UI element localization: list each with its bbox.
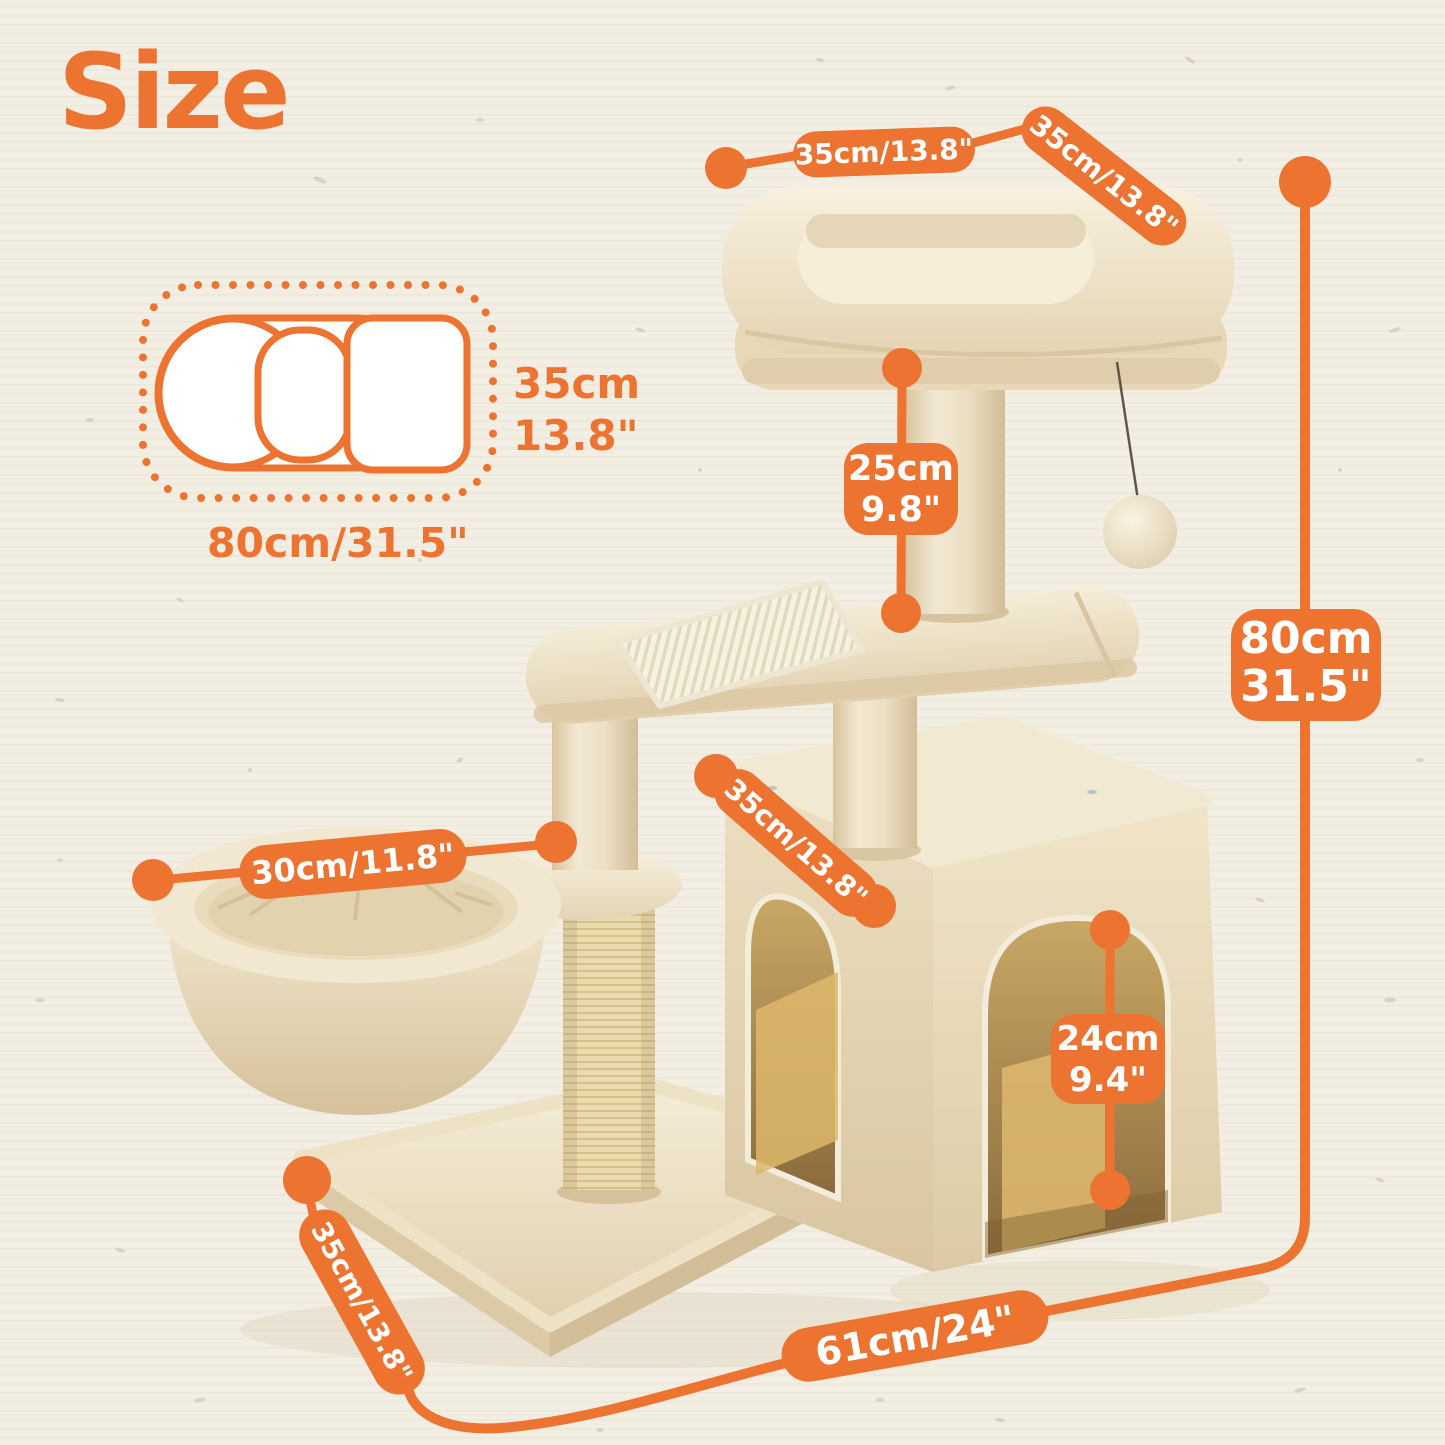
total-height-inch: 31.5" xyxy=(1240,661,1371,712)
footprint-rect-shape xyxy=(347,318,467,470)
perch-width-label: 35cm/13.8" xyxy=(794,132,974,171)
dim-endpoint-dot xyxy=(535,821,577,863)
size-infographic: Size 35cm 13.8" 80cm/31.5" xyxy=(0,0,1445,1445)
door-height-inch: 9.4" xyxy=(1069,1060,1147,1100)
condo-house xyxy=(725,722,1222,1272)
sisal-scratching-post xyxy=(557,890,661,1204)
pom-pom-ball xyxy=(1103,495,1177,569)
dim-endpoint-dot xyxy=(1279,156,1331,208)
dim-endpoint-dot xyxy=(132,859,174,901)
dim-endpoint-dot xyxy=(881,593,921,633)
footprint-depth-cm: 35cm xyxy=(513,359,640,408)
dim-endpoint-dot xyxy=(1090,910,1130,950)
footprint-rounded-square-shape xyxy=(258,330,350,460)
upper-post-cm: 25cm xyxy=(848,449,954,489)
dim-endpoint-dot xyxy=(1090,1170,1130,1210)
dim-endpoint-dot xyxy=(882,348,922,388)
condo-side-opening xyxy=(748,896,838,1198)
footprint-width-label: 80cm/31.5" xyxy=(207,519,469,567)
condo-top-post xyxy=(829,688,921,861)
footprint-depth-inch: 13.8" xyxy=(513,411,639,460)
upper-post-inch: 9.8" xyxy=(861,490,941,530)
size-diagram-canvas: Size 35cm 13.8" 80cm/31.5" xyxy=(0,0,1445,1445)
door-height-cm: 24cm xyxy=(1057,1019,1160,1059)
total-height-cm: 80cm xyxy=(1239,613,1372,664)
page-title: Size xyxy=(58,31,288,153)
